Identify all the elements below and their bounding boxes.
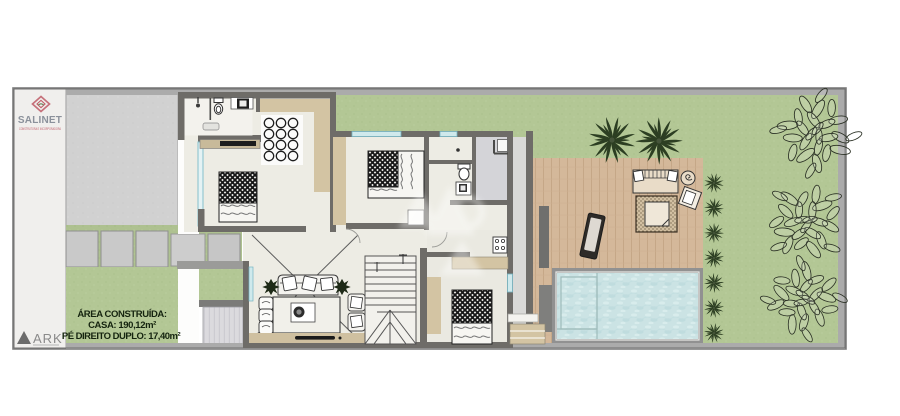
svg-text:CASA: 190,12m²: CASA: 190,12m² — [88, 320, 156, 331]
svg-text:CONSTRUTORA E INCORPORADORA: CONSTRUTORA E INCORPORADORA — [19, 127, 62, 131]
svg-text:ARK: ARK — [33, 331, 63, 346]
svg-text:PÉ DIREITO DUPLO: 17,40m²: PÉ DIREITO DUPLO: 17,40m² — [62, 331, 181, 342]
svg-text:SALINET: SALINET — [18, 115, 62, 126]
svg-text:ÁREA CONSTRUÍDA:: ÁREA CONSTRUÍDA: — [77, 309, 167, 320]
